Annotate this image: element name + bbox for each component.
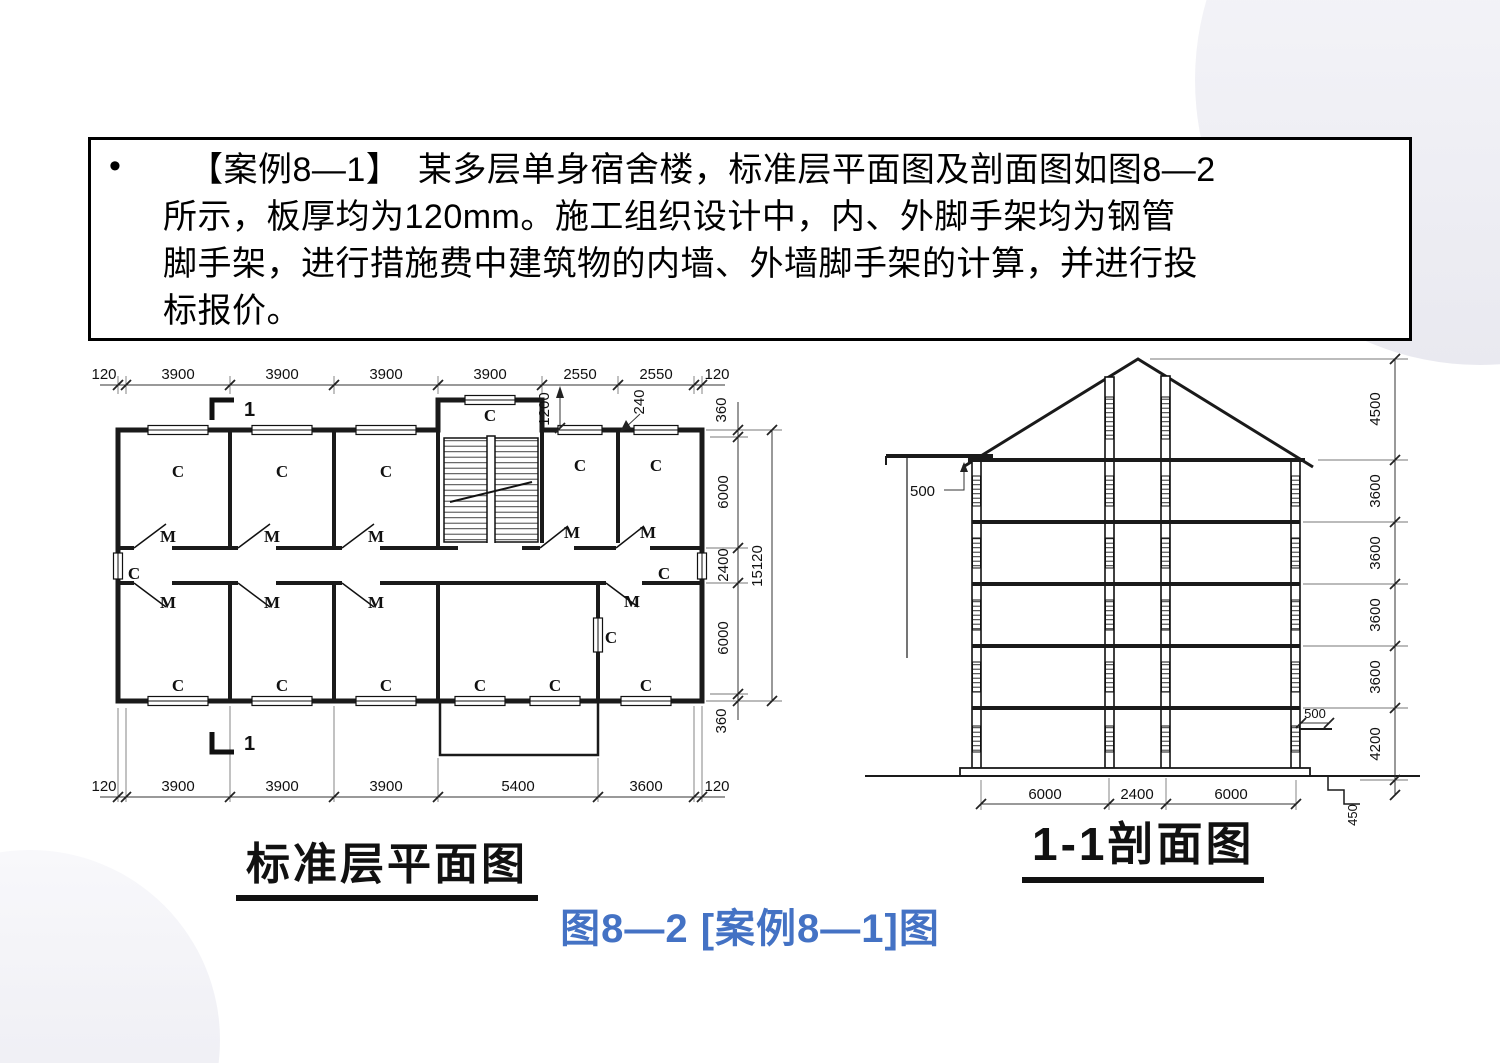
dim-bot-3600: 3600 [629, 778, 662, 795]
dim-eave-500: 500 [910, 483, 935, 500]
door-label: M [640, 523, 656, 542]
dim-top-3900b: 3900 [265, 366, 298, 383]
balcony-outline [440, 703, 598, 755]
dim-450: 450 [1345, 804, 1360, 826]
door-label: M [160, 527, 176, 546]
case-line-2: 所示，板厚均为120mm。施工组织设计中，内、外脚手架均为钢管 [163, 194, 1393, 241]
door-label: M [264, 527, 280, 546]
window-label: C [474, 676, 486, 695]
door-label: M [564, 523, 580, 542]
window-label: C [640, 676, 652, 695]
window-label: C [605, 628, 617, 647]
section-dim-right: 4500 3600 3600 3600 3600 4200 450 [1150, 354, 1408, 826]
dim-bay-1200: 1200 [536, 392, 553, 425]
eave-dim: 500 [910, 462, 968, 500]
dim-top-120l: 120 [91, 366, 116, 383]
plan-room-labels: C C C C C C C C C C C C C C C M M M M M … [128, 406, 670, 695]
case-text-box: • 【案例8—1】 某多层单身宿舍楼，标准层平面图及剖面图如图8—2 所示，板厚… [88, 137, 1412, 341]
case-paragraph: 【案例8—1】 某多层单身宿舍楼，标准层平面图及剖面图如图8—2 所示，板厚均为… [163, 147, 1393, 335]
foundation-steps [1312, 776, 1360, 804]
dim-bot-120l: 120 [91, 778, 116, 795]
door-label: M [264, 593, 280, 612]
dim-top-2550a: 2550 [563, 366, 596, 383]
dim-top-3900a: 3900 [161, 366, 194, 383]
window-label: C [574, 456, 586, 475]
door-label: M [368, 527, 384, 546]
floor-plan-drawing: 120 3900 3900 3900 3900 2550 2550 120 12… [60, 350, 800, 830]
window-label: C [276, 676, 288, 695]
plan-dim-right: 360 6000 2400 6000 360 15120 [706, 397, 782, 733]
window-label: C [549, 676, 561, 695]
section-dim-bottom: 6000 2400 6000 [976, 778, 1301, 810]
case-line-3: 脚手架，进行措施费中建筑物的内墙、外墙脚手架的计算，并进行投 [163, 241, 1393, 288]
dim-top-2550b: 2550 [639, 366, 672, 383]
window-label: C [276, 462, 288, 481]
dim-3600a: 3600 [1367, 474, 1384, 507]
dim-right-6000a: 6000 [715, 475, 732, 508]
door-label: M [368, 593, 384, 612]
door-label: M [624, 592, 640, 611]
dim-right-360t: 360 [713, 397, 730, 422]
dim-6000l: 6000 [1028, 786, 1061, 803]
case-line-4: 标报价。 [163, 288, 1393, 335]
staircase [444, 436, 538, 554]
ledge-dim: 500 [1296, 706, 1334, 729]
dim-bot-3900b: 3900 [265, 778, 298, 795]
dim-bot-3900c: 3900 [369, 778, 402, 795]
window-label: C [172, 676, 184, 695]
door-label: M [160, 593, 176, 612]
dim-4200: 4200 [1367, 727, 1384, 760]
dim-right-360b: 360 [713, 708, 730, 733]
window-label: C [380, 462, 392, 481]
dim-3600c: 3600 [1367, 598, 1384, 631]
dim-3600b: 3600 [1367, 536, 1384, 569]
dim-bot-5400: 5400 [501, 778, 534, 795]
floor-slabs [968, 460, 1305, 708]
window-label: C [172, 462, 184, 481]
plan-dim-bottom: 120 3900 3900 3900 5400 3600 120 [91, 706, 729, 802]
section-drawing: 500 500 4500 3600 3600 3600 3600 [860, 352, 1460, 882]
dim-right-2400: 2400 [715, 548, 732, 581]
window-label: C [484, 406, 496, 425]
dim-top-120r: 120 [704, 366, 729, 383]
window-label: C [380, 676, 392, 695]
section-windows [973, 397, 1300, 752]
dim-wall-240: 240 [631, 389, 648, 414]
dim-right-6000b: 6000 [715, 621, 732, 654]
dim-top-3900c: 3900 [369, 366, 402, 383]
window-label: C [128, 564, 140, 583]
bullet-glyph: • [109, 146, 121, 186]
dim-6000r: 6000 [1214, 786, 1247, 803]
window-label: C [658, 564, 670, 583]
decorative-circle-bottom-left [0, 850, 220, 1063]
plan-caption: 标准层平面图 [236, 828, 538, 901]
slide-canvas: • 【案例8—1】 某多层单身宿舍楼，标准层平面图及剖面图如图8—2 所示，板厚… [0, 0, 1500, 1063]
dim-bot-120r: 120 [704, 778, 729, 795]
dim-top-3900d: 3900 [473, 366, 506, 383]
section-mark-bottom: 1 [244, 733, 255, 755]
roof [886, 359, 1313, 658]
dim-4500: 4500 [1367, 392, 1384, 425]
dim-bot-3900a: 3900 [161, 778, 194, 795]
case-line-1: 【案例8—1】 某多层单身宿舍楼，标准层平面图及剖面图如图8—2 [163, 147, 1393, 194]
dim-2400: 2400 [1120, 786, 1153, 803]
section-mark-top: 1 [244, 399, 255, 421]
dim-right-total: 15120 [749, 545, 766, 587]
dim-3600d: 3600 [1367, 660, 1384, 693]
figure-caption: 图8—2 [案例8—1]图 [0, 896, 1500, 954]
window-label: C [650, 456, 662, 475]
section-caption: 1-1剖面图 [1022, 808, 1264, 883]
